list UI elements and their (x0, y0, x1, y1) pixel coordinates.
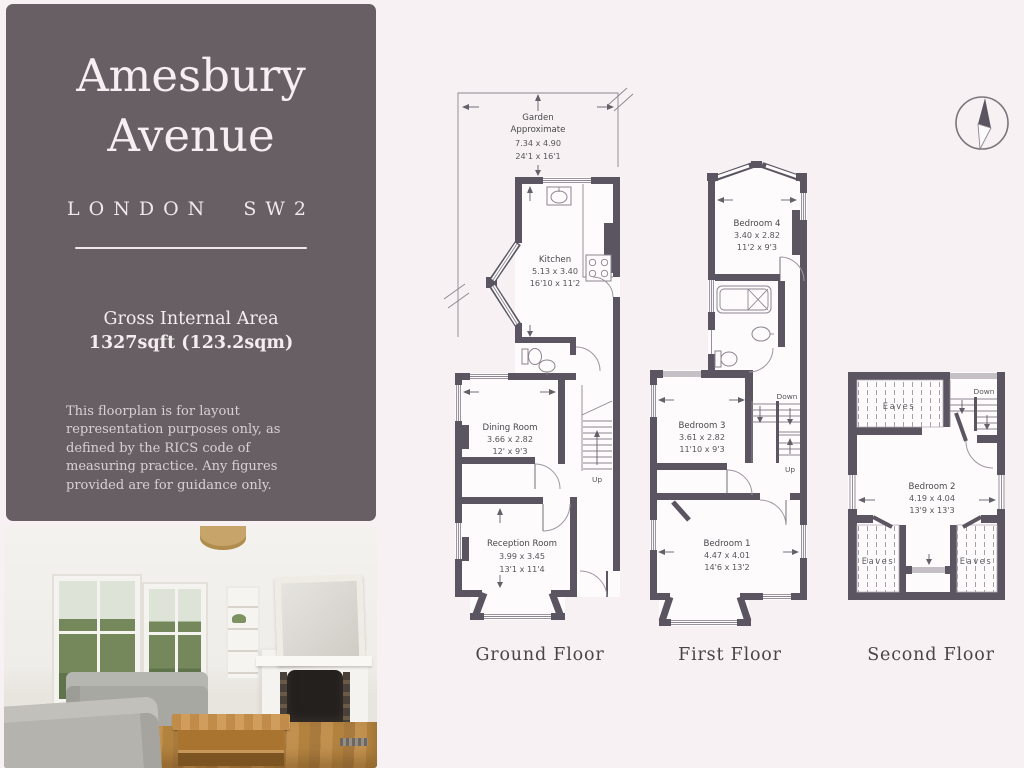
room-bedroom1: Bedroom 1 4.47 x 4.01 14'6 x 13'2 (703, 539, 750, 572)
svg-text:Reception Room: Reception Room (487, 539, 557, 549)
svg-text:11'10 x 9'3: 11'10 x 9'3 (679, 444, 724, 454)
wc-toilet (522, 349, 542, 365)
room-bedroom4: Bedroom 4 3.40 x 2.82 11'2 x 9'3 (733, 219, 780, 252)
garden-imperial: 24'1 x 16'1 (515, 151, 560, 161)
svg-text:14'6 x 13'2: 14'6 x 13'2 (704, 562, 749, 572)
coffee-table-top (172, 714, 290, 730)
svg-text:Bedroom 2: Bedroom 2 (908, 482, 955, 492)
svg-text:Bedroom 1: Bedroom 1 (703, 539, 750, 549)
svg-text:Bedroom 3: Bedroom 3 (678, 421, 725, 431)
first-floor-plan: Down Up Bedroom 4 3.40 x 2.82 11'2 x 9'3… (645, 160, 815, 670)
svg-text:12' x 9'3: 12' x 9'3 (493, 446, 528, 456)
north-compass-icon (950, 92, 1014, 156)
first-stairs-up-label: Up (785, 465, 795, 474)
coffee-table-front (178, 730, 284, 766)
floor-vent (340, 738, 368, 746)
svg-text:4.19 x 4.04: 4.19 x 4.04 (909, 493, 955, 503)
room-garden: Garden Approximate 7.34 x 4.90 24'1 x 16… (511, 113, 566, 161)
sofa-front (4, 696, 163, 768)
gross-area-label: Gross Internal Area (6, 309, 376, 329)
svg-text:13'1 x 11'4: 13'1 x 11'4 (499, 564, 544, 574)
svg-text:3.61 x 2.82: 3.61 x 2.82 (679, 432, 725, 442)
kitchen-stove (586, 255, 611, 281)
ground-floor-plan: Garden Approximate 7.34 x 4.90 24'1 x 16… (440, 85, 640, 675)
svg-text:3.99 x 3.45: 3.99 x 3.45 (499, 551, 545, 561)
ground-floor-label: Ground Floor (440, 645, 640, 665)
svg-text:Bedroom 4: Bedroom 4 (733, 219, 780, 229)
svg-text:11'2 x 9'3: 11'2 x 9'3 (737, 242, 777, 252)
mantel-shelf (256, 656, 372, 666)
garden-metric: 7.34 x 4.90 (515, 138, 561, 148)
garden-name: Garden (522, 113, 554, 123)
mantel-mirror (274, 574, 365, 665)
info-panel: Amesbury Avenue LONDON SW2 Gross Interna… (6, 4, 376, 521)
bathtub (717, 286, 771, 313)
second-floor-plan: Down Eaves Bedroom 2 4.19 x 4.04 13'9 x … (845, 365, 1010, 610)
svg-text:13'9 x 13'3: 13'9 x 13'3 (909, 505, 954, 515)
eaves-top-label: Eaves (883, 401, 915, 411)
alcove-shelves (226, 586, 260, 680)
shelf-plant (232, 614, 246, 623)
second-floor-label: Second Floor (845, 645, 1017, 665)
gross-area-value: 1327sqft (123.2sqm) (6, 333, 376, 353)
disclaimer-text: This floorplan is for layout representat… (66, 403, 316, 495)
first-stairs-down-label: Down (777, 392, 798, 401)
svg-text:Kitchen: Kitchen (539, 255, 571, 265)
room-bedroom2: Bedroom 2 4.19 x 4.04 13'9 x 13'3 (908, 482, 955, 515)
kitchen-sink (547, 187, 571, 205)
room-bedroom3: Bedroom 3 3.61 x 2.82 11'10 x 9'3 (678, 421, 725, 454)
floorplan-page: Amesbury Avenue LONDON SW2 Gross Interna… (0, 0, 1024, 768)
second-stairs-down-label: Down (974, 387, 995, 396)
ground-stairs-up-label: Up (592, 475, 602, 484)
property-title: Amesbury Avenue (6, 46, 376, 166)
panel-divider (75, 247, 307, 249)
bathroom-toilet (715, 351, 737, 367)
svg-text:4.47 x 4.01: 4.47 x 4.01 (704, 550, 750, 560)
eaves-left-label: Eaves (862, 556, 894, 566)
living-room-photo (4, 526, 377, 768)
ceiling-light (200, 526, 246, 550)
property-title-line2: Avenue (6, 106, 376, 166)
svg-text:5.13 x 3.40: 5.13 x 3.40 (532, 266, 578, 276)
svg-text:3.40 x 2.82: 3.40 x 2.82 (734, 230, 780, 240)
garden-qualifier: Approximate (511, 125, 566, 135)
first-floor-label: First Floor (645, 645, 815, 665)
svg-text:3.66 x 2.82: 3.66 x 2.82 (487, 434, 533, 444)
eaves-right-label: Eaves (960, 556, 992, 566)
property-location: LONDON SW2 (6, 198, 376, 220)
svg-text:16'10 x 11'2: 16'10 x 11'2 (530, 278, 580, 288)
svg-text:Dining Room: Dining Room (483, 423, 538, 433)
property-title-line1: Amesbury (6, 46, 376, 106)
